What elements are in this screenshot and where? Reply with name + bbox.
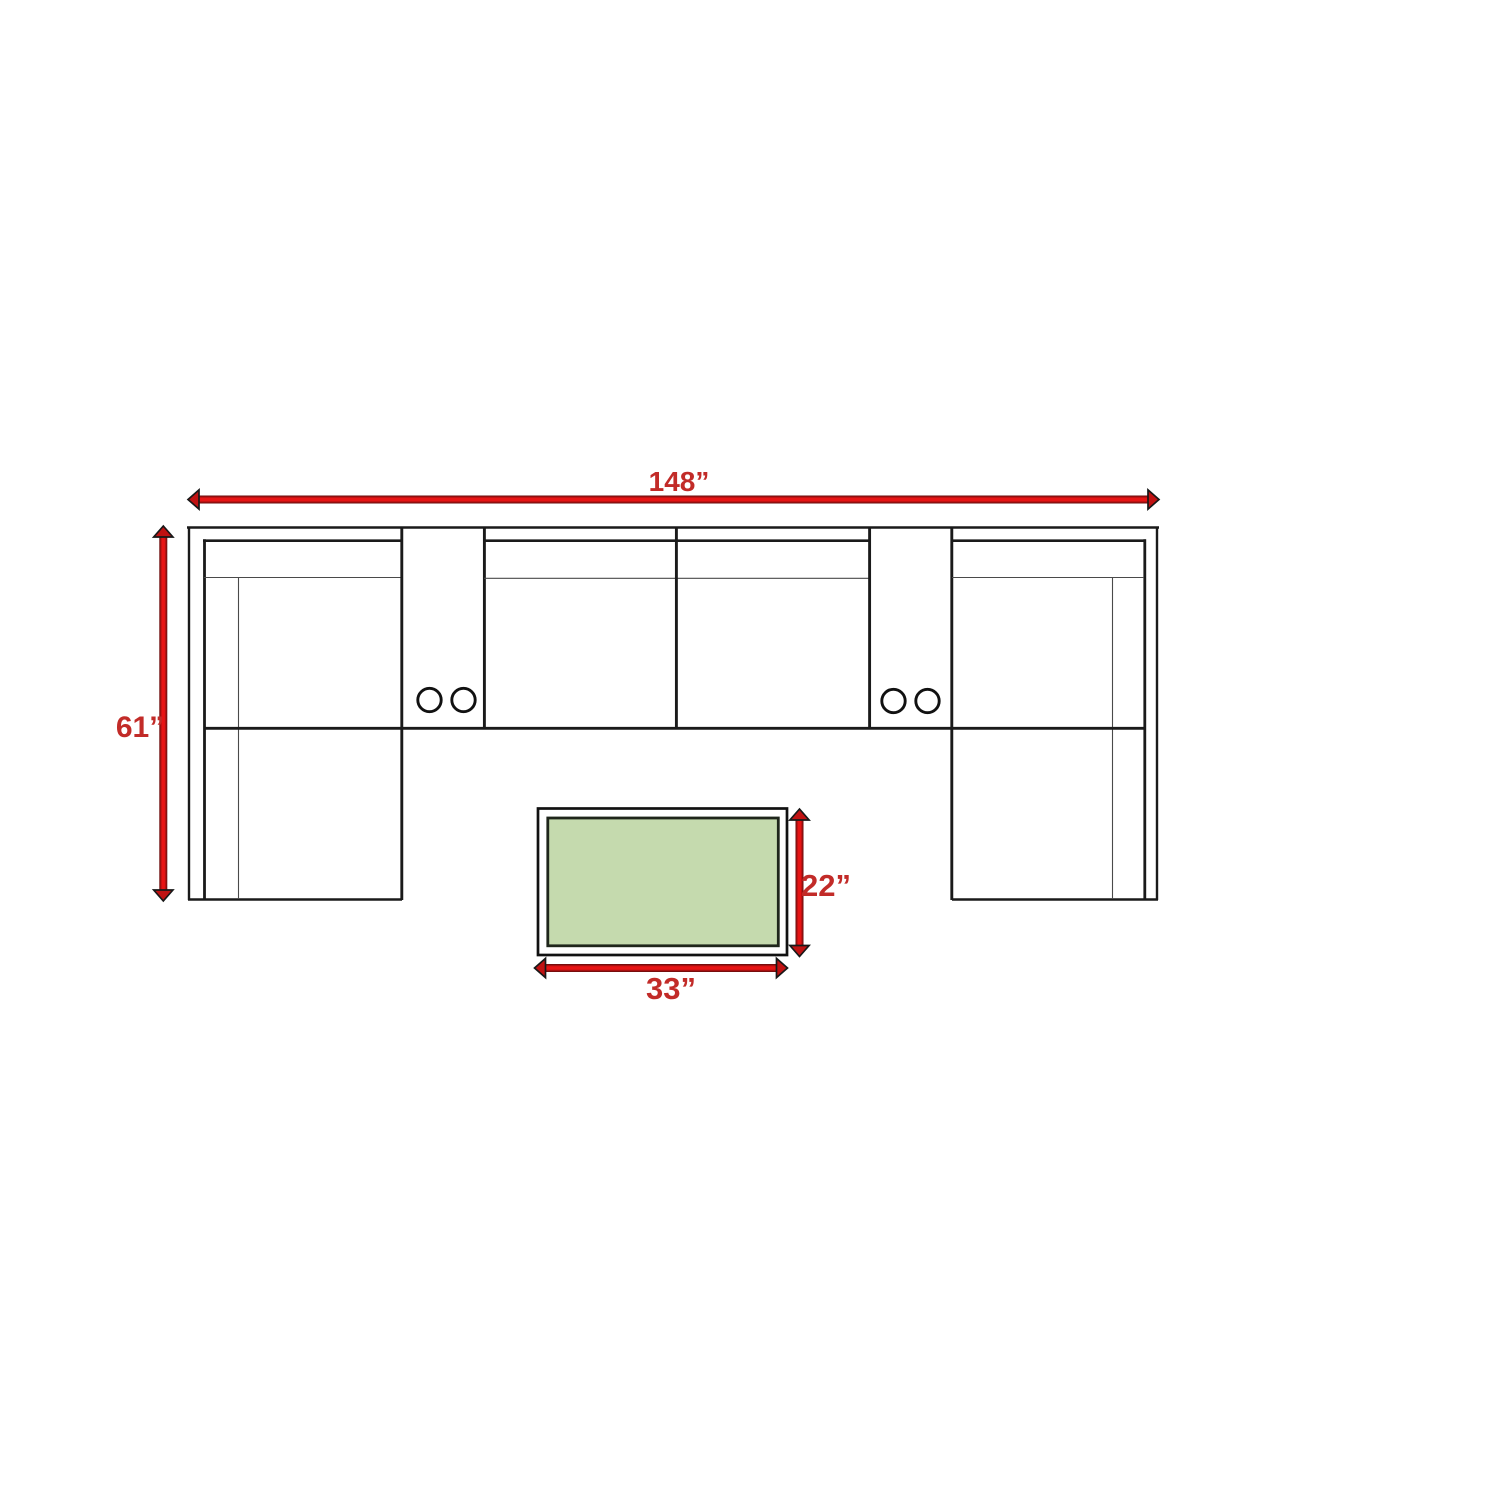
svg-text:22”: 22”	[801, 868, 851, 903]
svg-text:148”: 148”	[649, 466, 710, 497]
svg-text:61”: 61”	[116, 711, 164, 744]
svg-text:33”: 33”	[646, 971, 696, 1006]
